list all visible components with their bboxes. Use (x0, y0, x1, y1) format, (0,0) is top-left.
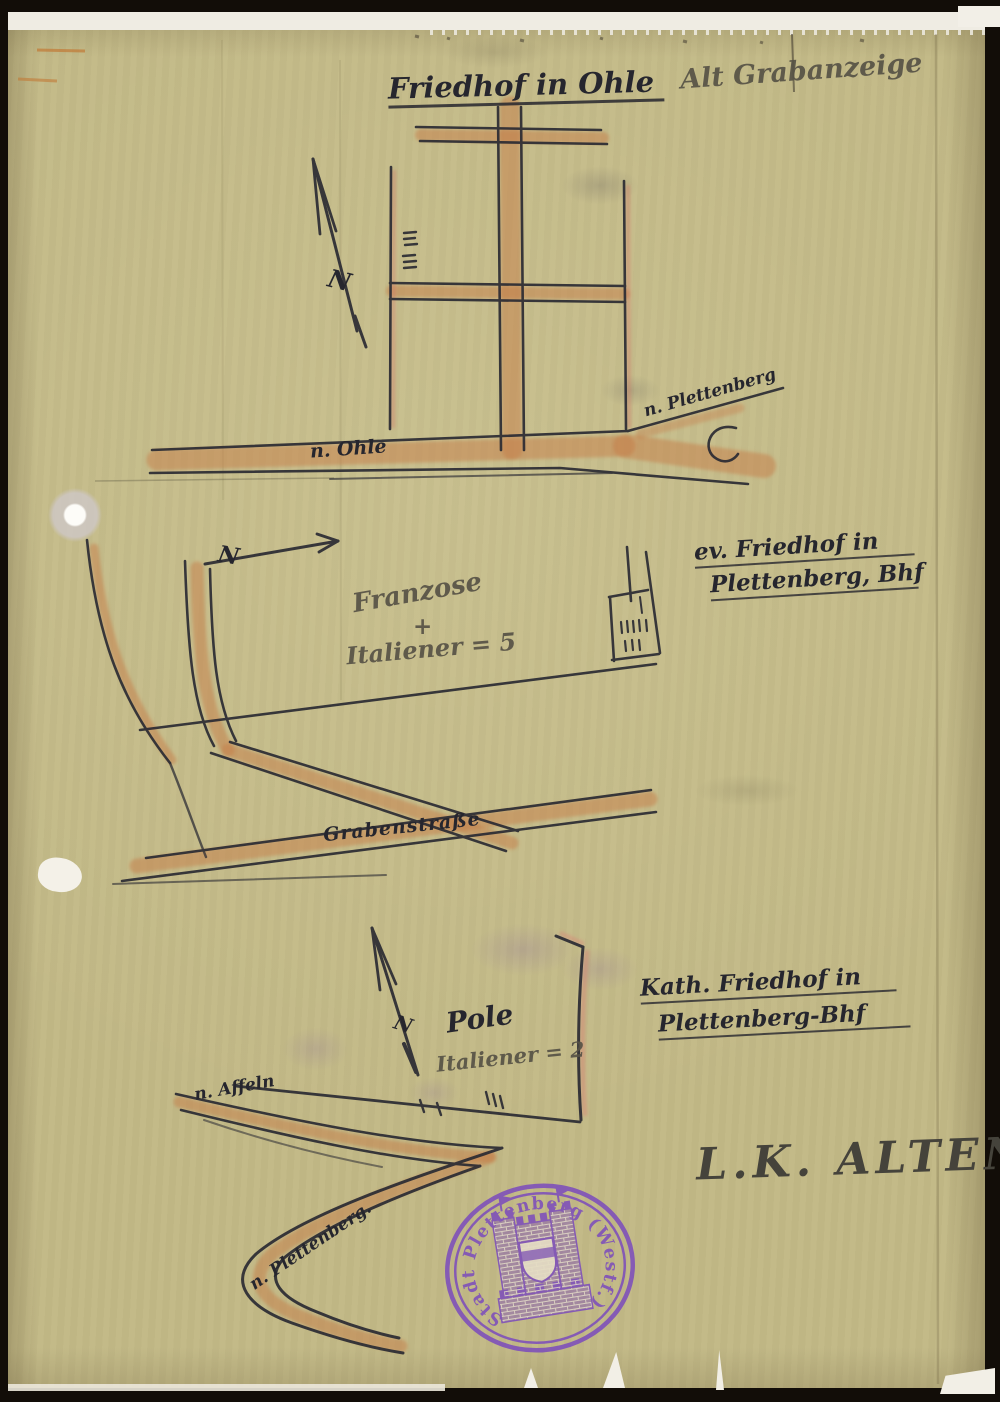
stamp-seal: Stadt Plettenberg (Westf.) (435, 1172, 644, 1363)
district-note: L.K. ALTENA (695, 1130, 1000, 1189)
north-arrow-3 (372, 928, 418, 1075)
compass-letter-n: N (216, 542, 241, 569)
map-drawings: Stadt Plettenberg (Westf.) (0, 0, 1000, 1402)
scanned-document: Stadt Plettenberg (Westf.) (0, 0, 1000, 1402)
map1-title: Friedhof in Ohle (388, 66, 665, 109)
map2-grave-plot (609, 552, 660, 661)
grave-tick-marks (403, 232, 417, 268)
